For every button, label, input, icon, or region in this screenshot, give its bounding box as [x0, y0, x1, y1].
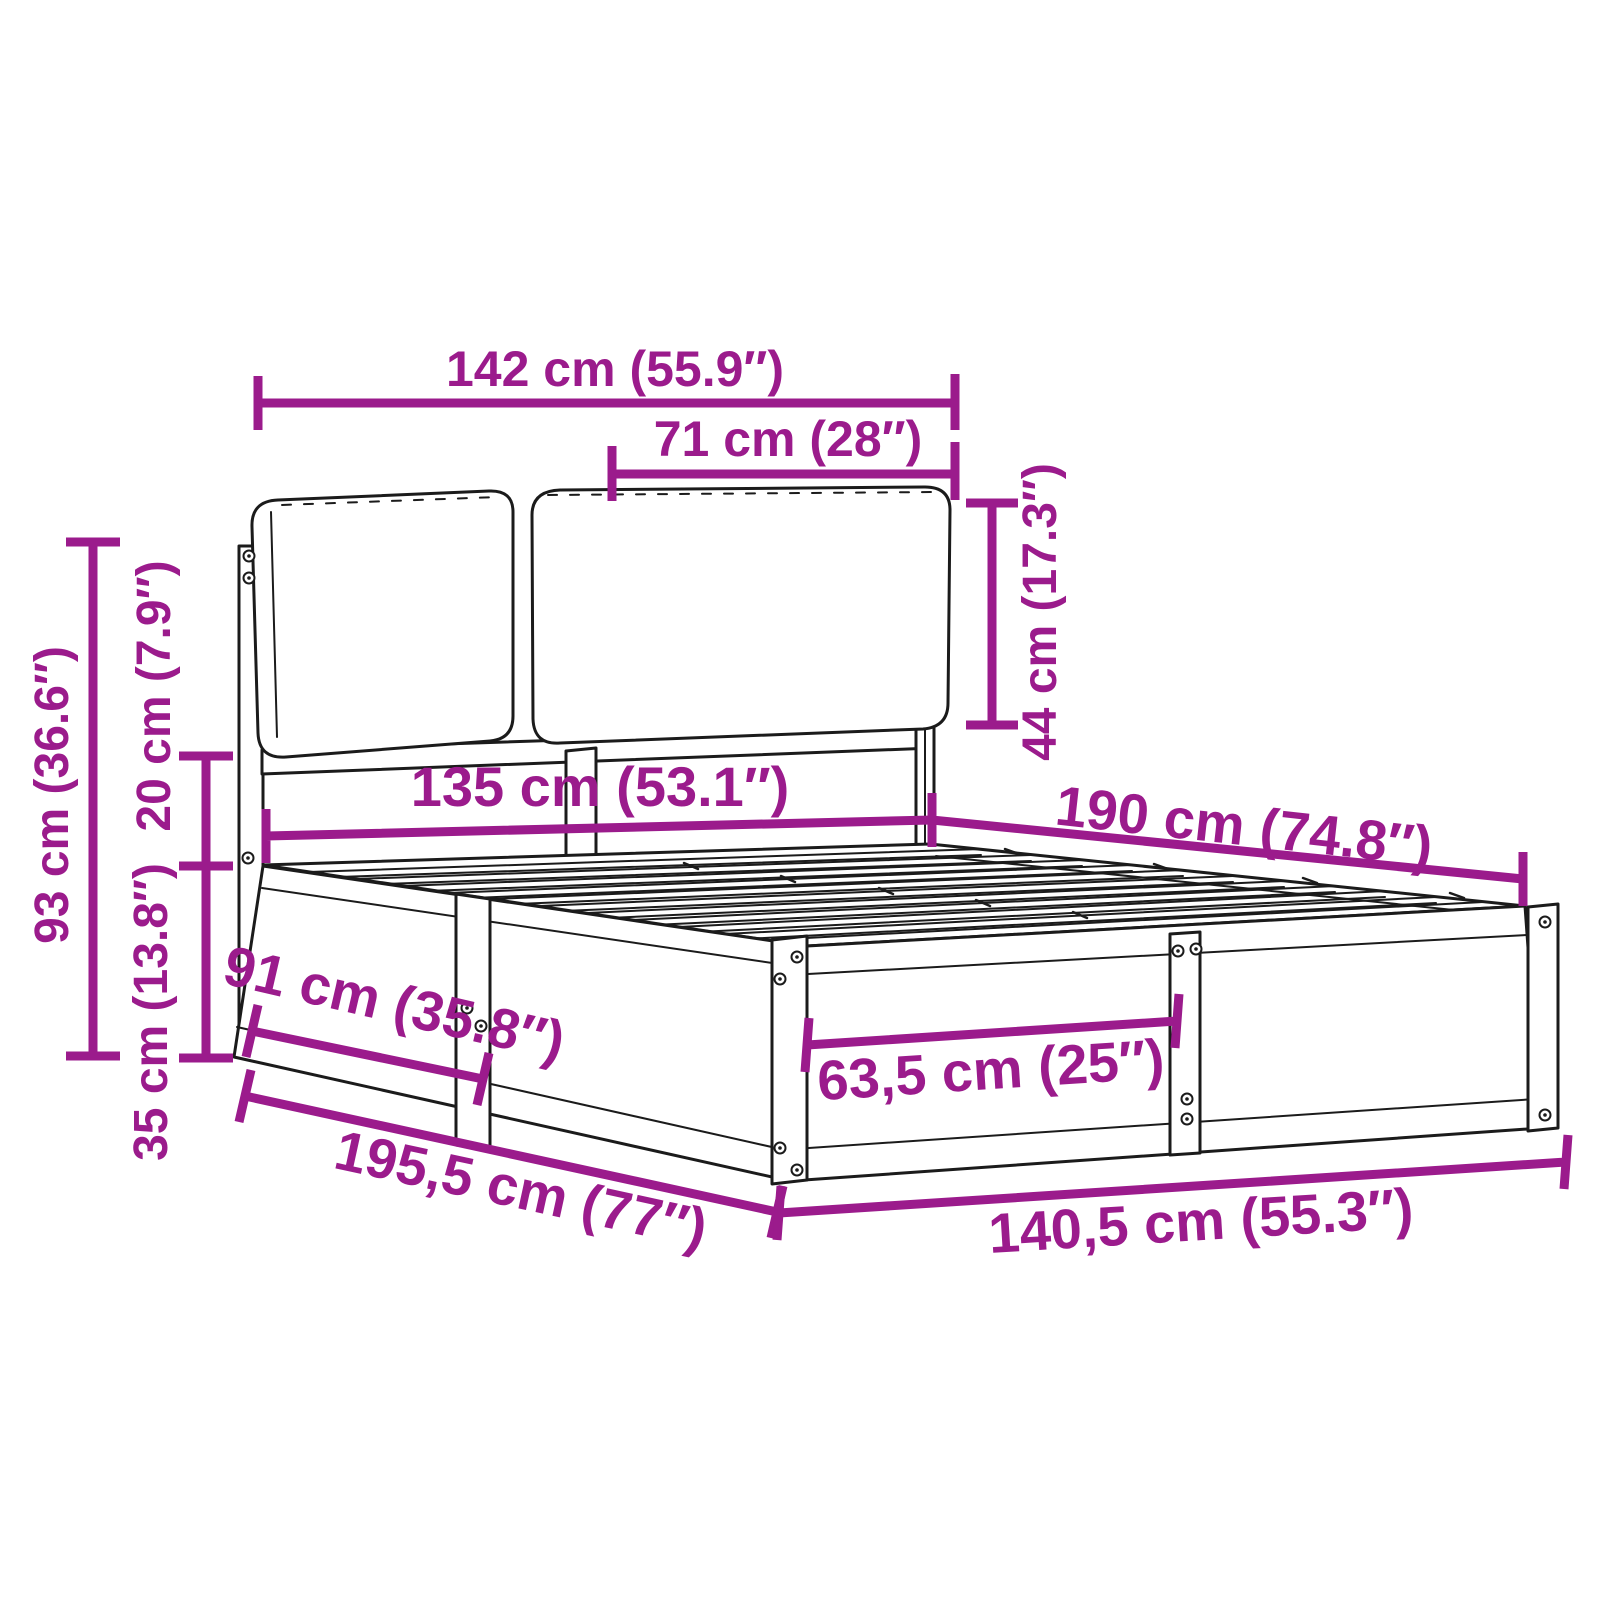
dim-label-cushion-height: 44 cm (17.3″)	[1014, 463, 1067, 761]
bed-dimension-diagram: 142 cm (55.9″) 71 cm (28″) 44 cm (17.3″)…	[0, 0, 1600, 1600]
foot-right-post	[1528, 904, 1558, 1131]
diagram-canvas: 142 cm (55.9″) 71 cm (28″) 44 cm (17.3″)…	[0, 0, 1600, 1600]
dim-cushion-gap-and-base-height	[179, 756, 233, 1058]
dim-label-base-height: 35 cm (13.8″)	[125, 863, 178, 1161]
dim-cushion-height	[966, 503, 1018, 725]
dim-label-cushion-gap-height: 20 cm (7.9″)	[128, 560, 181, 831]
dim-label-headboard-total-width: 142 cm (55.9″)	[446, 341, 784, 397]
dim-line	[179, 756, 233, 1058]
headboard-cushion-right	[532, 487, 950, 743]
dim-label-headboard-height: 93 cm (36.6″)	[26, 646, 79, 944]
dim-line	[966, 503, 1018, 725]
dim-label-total-width: 140,5 cm (55.3″)	[987, 1176, 1415, 1265]
headboard-cushion-left	[252, 491, 513, 757]
dim-label-inner-width: 135 cm (53.1″)	[411, 755, 790, 818]
dim-label-cushion-width: 71 cm (28″)	[654, 411, 923, 467]
